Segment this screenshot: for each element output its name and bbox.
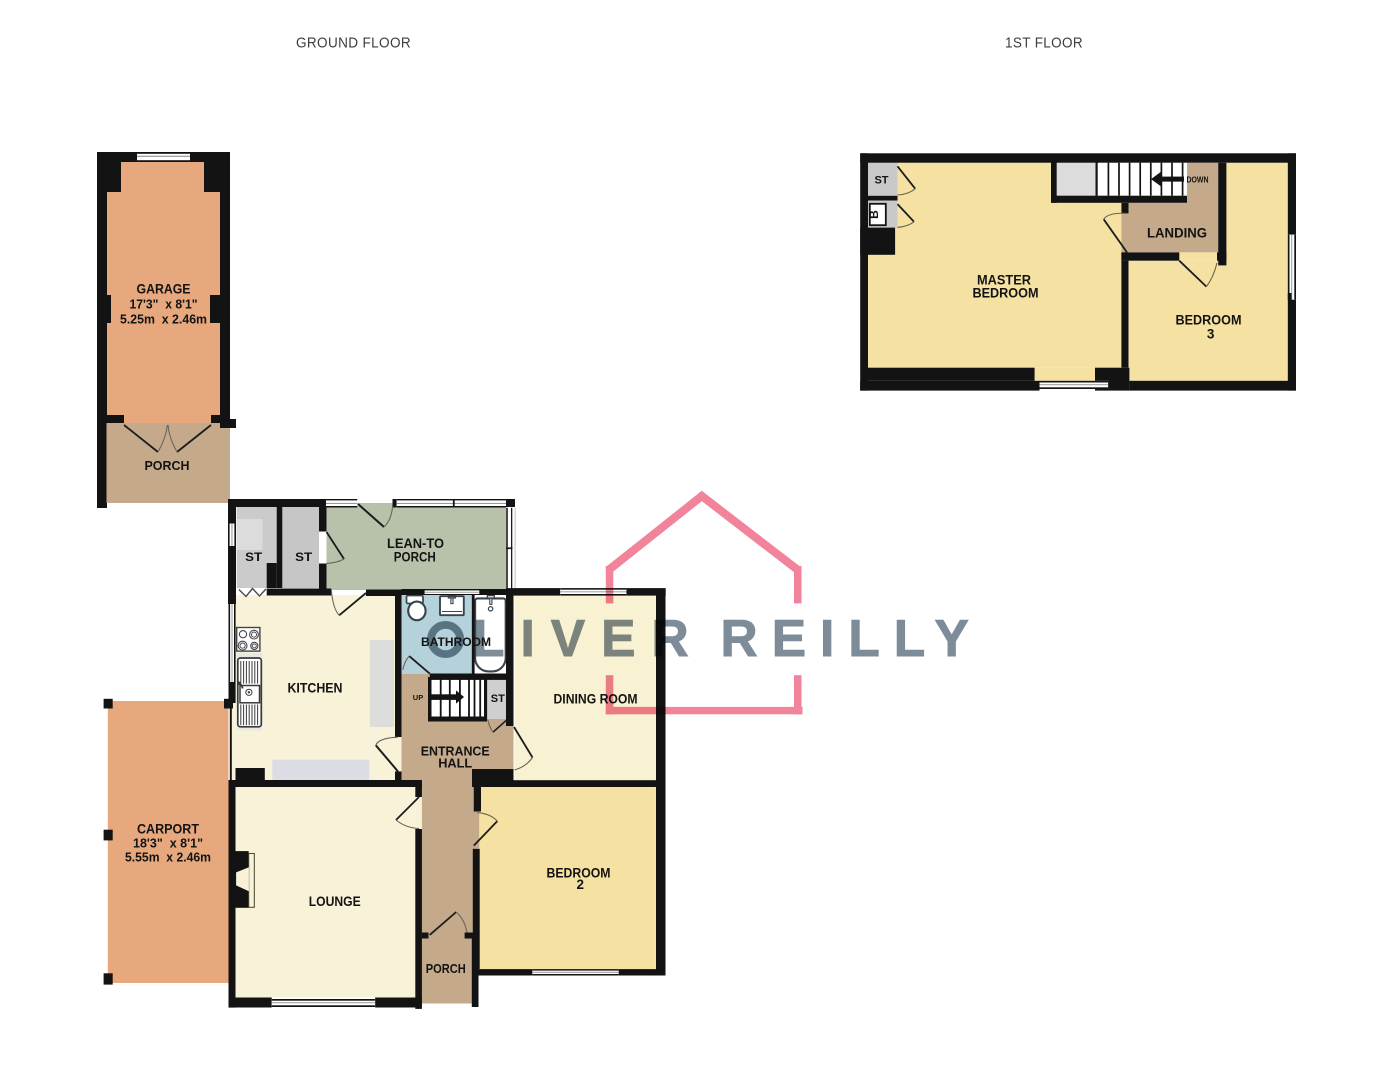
svg-text:CARPORT: CARPORT — [137, 822, 200, 837]
svg-text:B: B — [867, 210, 881, 219]
svg-text:5.25m x 2.46m: 5.25m x 2.46m — [120, 313, 207, 327]
svg-text:3: 3 — [1207, 327, 1215, 342]
svg-text:18'3" x 8'1": 18'3" x 8'1" — [133, 837, 203, 851]
svg-text:2: 2 — [577, 877, 585, 892]
svg-text:DINING ROOM: DINING ROOM — [554, 691, 638, 706]
svg-text:GROUND FLOOR: GROUND FLOOR — [296, 35, 411, 52]
svg-text:KITCHEN: KITCHEN — [288, 681, 343, 696]
svg-text:PORCH: PORCH — [145, 458, 190, 473]
svg-text:ST: ST — [491, 693, 505, 705]
svg-text:UP: UP — [413, 693, 423, 702]
svg-text:ST: ST — [874, 175, 888, 187]
svg-text:PORCH: PORCH — [426, 961, 466, 976]
svg-text:5.55m x 2.46m: 5.55m x 2.46m — [125, 851, 211, 865]
svg-text:LOUNGE: LOUNGE — [309, 894, 361, 909]
svg-text:BATHROOM: BATHROOM — [421, 635, 491, 649]
svg-text:LIVER: LIVER — [473, 609, 705, 667]
svg-text:ST: ST — [295, 550, 313, 564]
svg-text:DOWN: DOWN — [1187, 176, 1209, 185]
svg-text:17'3" x 8'1": 17'3" x 8'1" — [130, 298, 198, 312]
svg-text:ST: ST — [245, 550, 263, 564]
svg-text:HALL: HALL — [438, 756, 472, 771]
svg-text:LANDING: LANDING — [1147, 225, 1207, 240]
svg-text:GARAGE: GARAGE — [137, 282, 191, 297]
svg-text:PORCH: PORCH — [394, 550, 436, 565]
svg-text:BEDROOM: BEDROOM — [1176, 313, 1242, 328]
svg-text:REILLY: REILLY — [721, 609, 983, 667]
svg-text:BEDROOM: BEDROOM — [973, 286, 1039, 301]
svg-text:1ST FLOOR: 1ST FLOOR — [1005, 35, 1083, 52]
